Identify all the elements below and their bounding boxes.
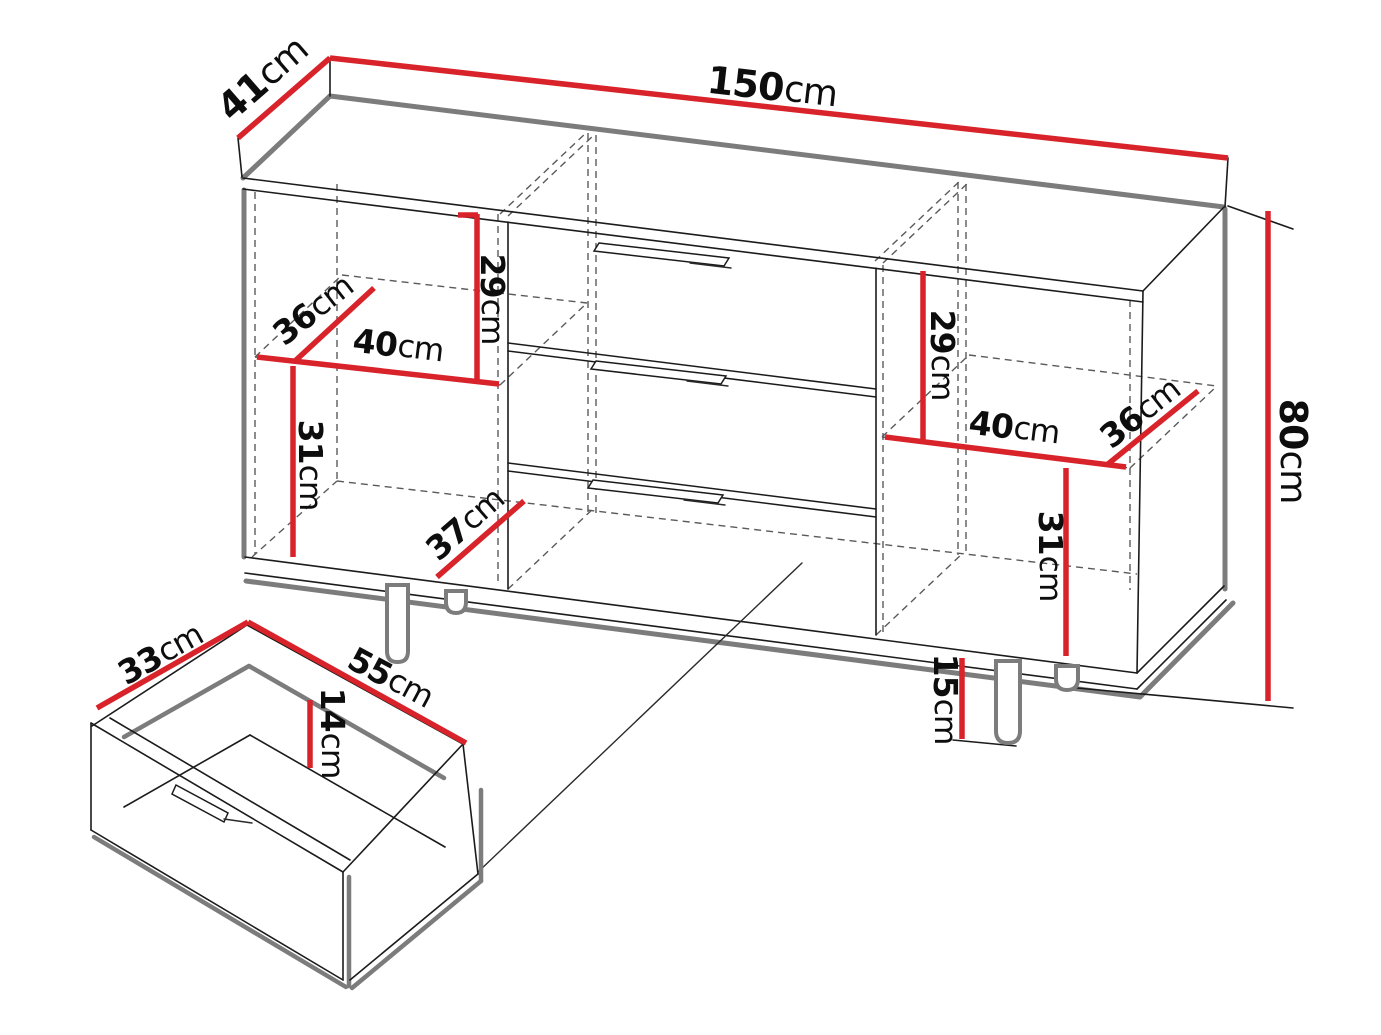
dim-left-upper-height-label: 29cm: [474, 254, 513, 345]
legs: [387, 585, 1078, 743]
dim-right-shelf-width-label: 40cm: [967, 402, 1062, 452]
drawer-2-handle: [591, 361, 726, 384]
dim-left-shelf-width-label: 40cm: [351, 320, 446, 370]
leg-front-left: [387, 585, 408, 662]
dim-right-lower-height-label: 31cm: [1032, 511, 1071, 602]
dim-right-height-label: 80cm: [1272, 399, 1316, 504]
diagram-page: 41cm150cm80cm29cm36cm40cm31cm37cm29cm40c…: [0, 0, 1381, 1035]
dim-top-width-label: 150cm: [705, 57, 839, 115]
dim-leg-height-label: 15cm: [927, 654, 966, 745]
drawer-shadow-edges: [94, 666, 481, 988]
hidden-edges: [252, 132, 1217, 635]
leg-back-left: [446, 591, 466, 613]
drawer-3-handle: [588, 480, 723, 503]
drawer-1-handle: [594, 243, 729, 266]
leg-front-right: [996, 661, 1020, 743]
dim-drawer-height-label: 14cm: [314, 688, 353, 779]
drawer-handles: [588, 243, 731, 505]
drawer-detail-handle: [172, 785, 228, 822]
dim-right-upper-height-label: 29cm: [924, 310, 963, 401]
dim-left-shelf-depth-label: 36cm: [265, 266, 360, 353]
dimension-lines: [97, 58, 1268, 768]
dim-left-lower-height-label: 31cm: [292, 420, 331, 511]
dim-drawer-depth-label: 33cm: [111, 614, 209, 692]
leg-back-right: [1056, 666, 1078, 690]
furniture-dimension-diagram: 41cm150cm80cm29cm36cm40cm31cm37cm29cm40c…: [0, 0, 1381, 1035]
